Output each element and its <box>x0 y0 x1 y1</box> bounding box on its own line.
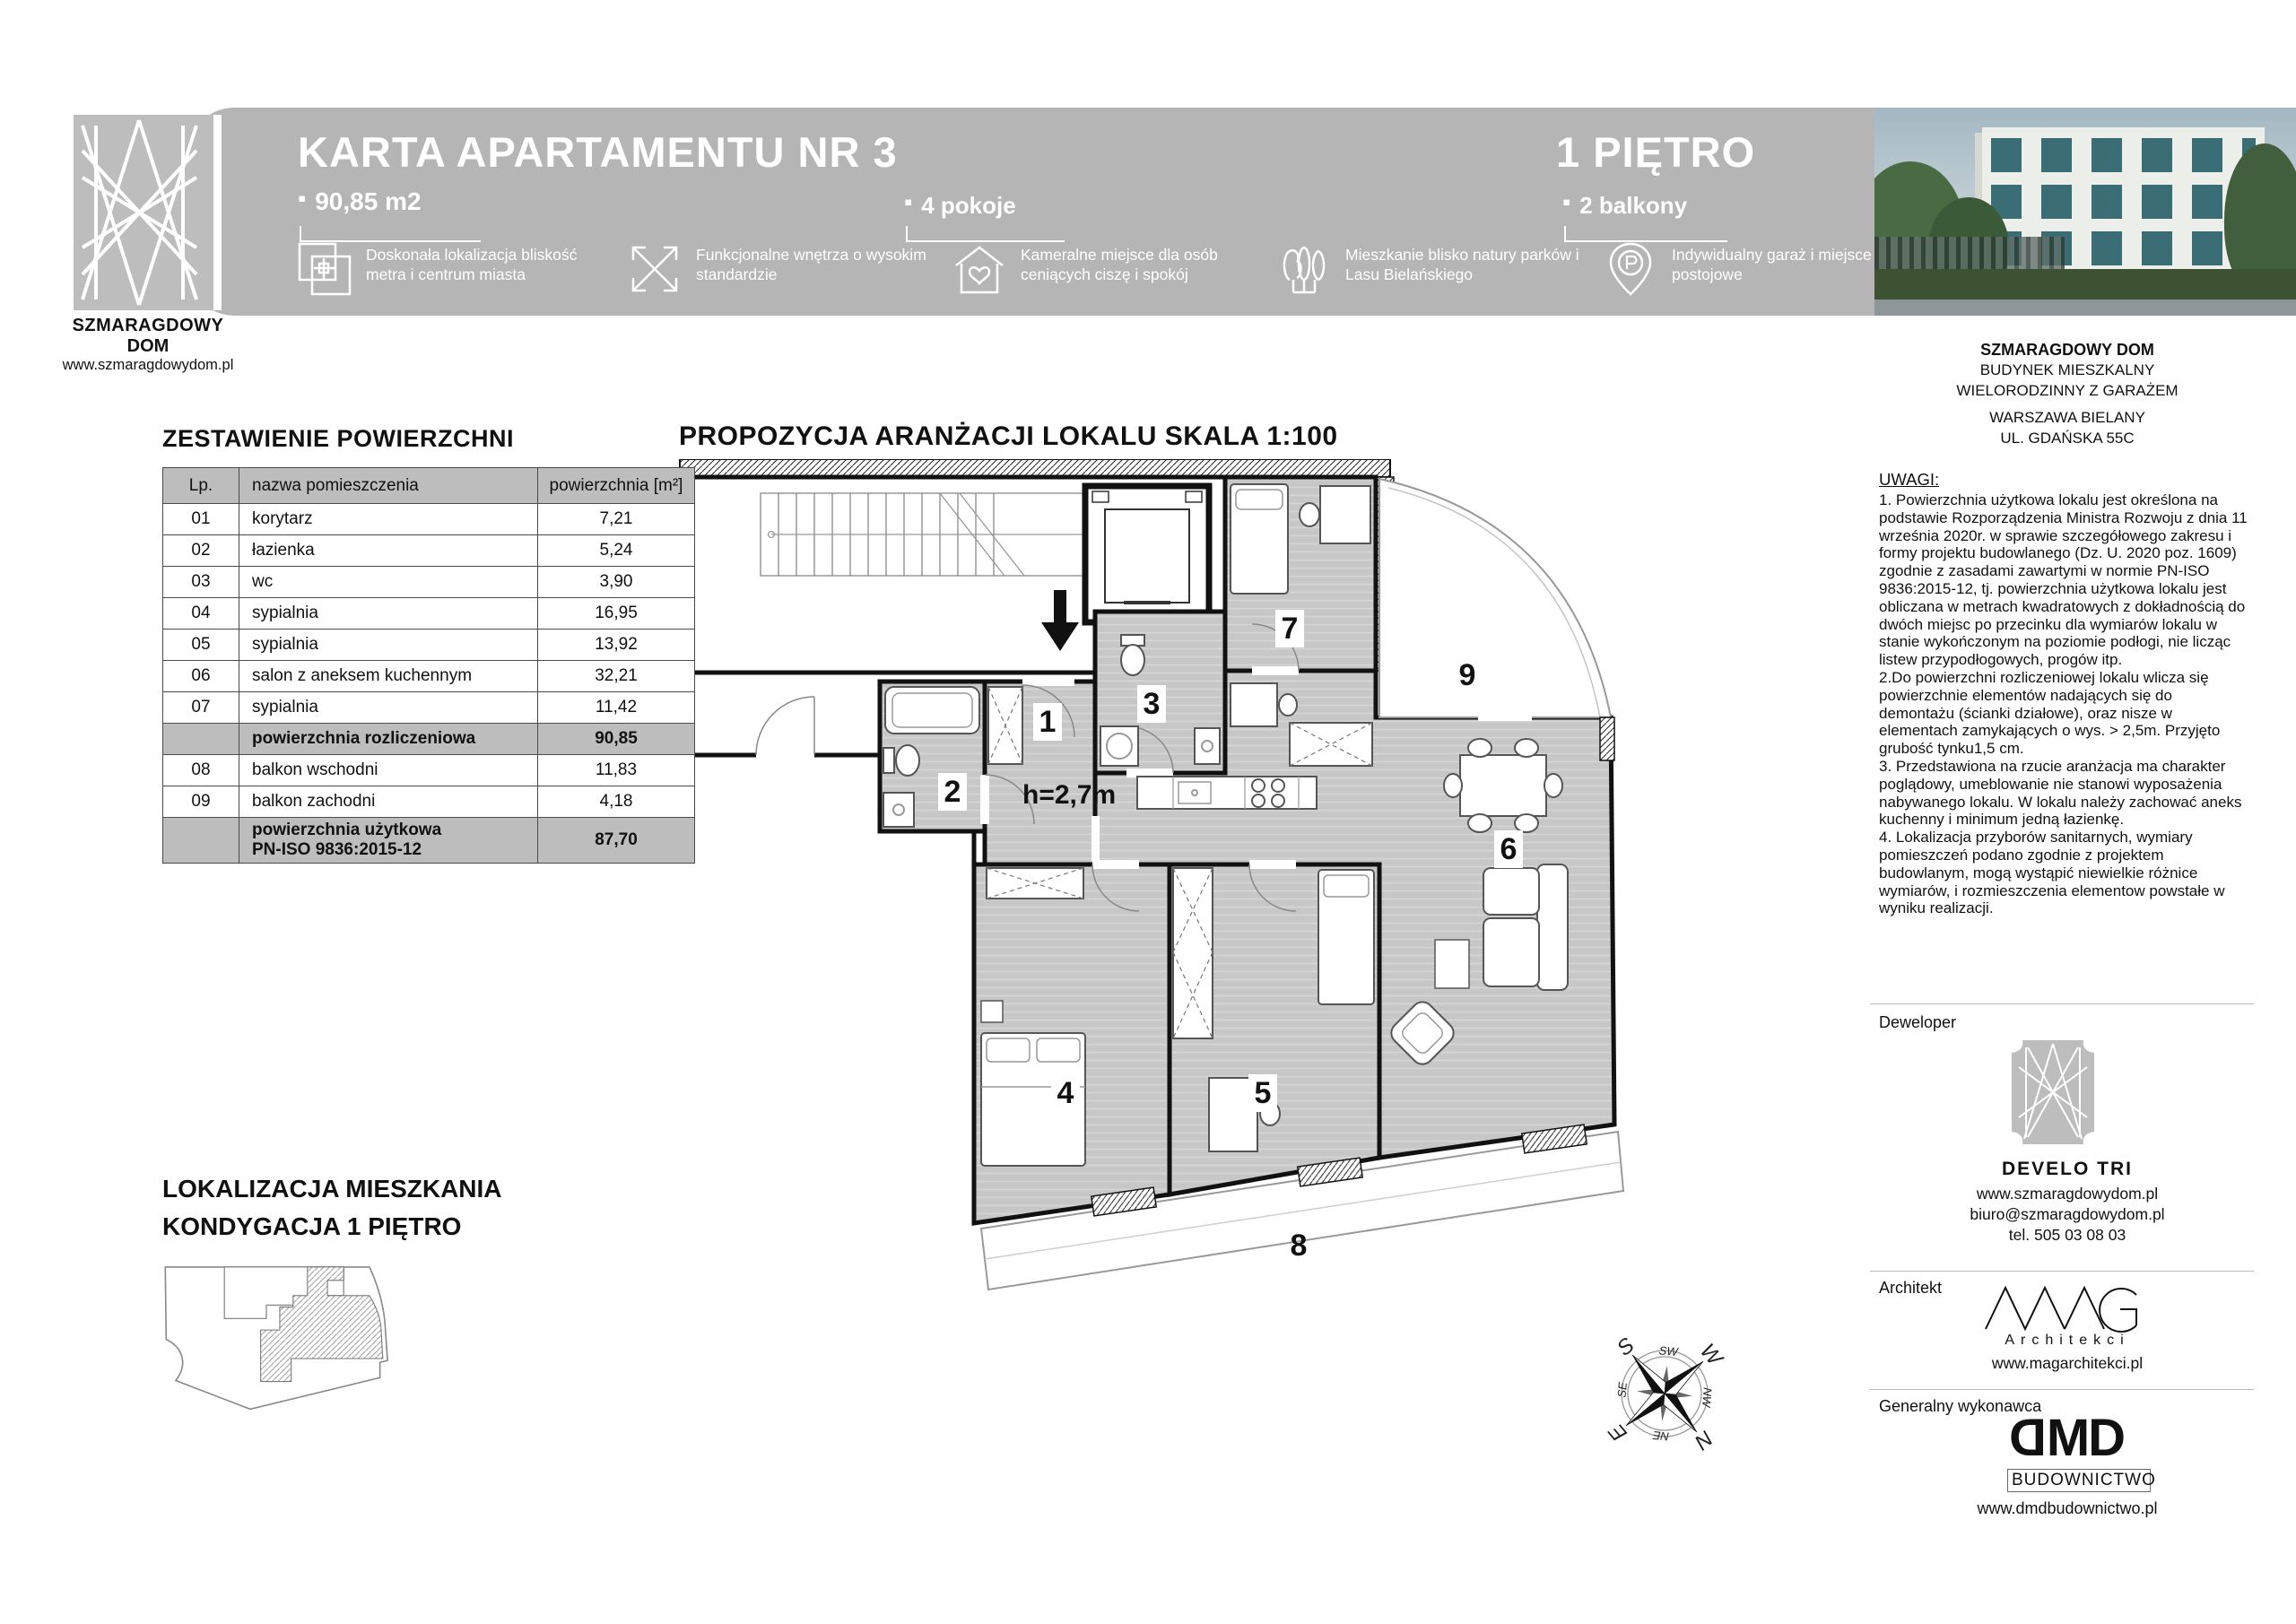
note-paragraph: 1. Powierzchnia użytkowa lokalu jest okr… <box>1879 491 2250 669</box>
compass-w: W <box>1695 1339 1728 1372</box>
address-block: WARSZAWA BIELANY UL. GDAŃSKA 55C <box>1879 408 2256 449</box>
vestibule-walls <box>680 673 880 755</box>
feature-text: Mieszkanie blisko natury parków i Lasu B… <box>1345 240 1585 285</box>
note-paragraph: 3. Przedstawiona na rzucie aranżacja ma … <box>1879 758 2250 829</box>
table-cell: 32,21 <box>538 661 695 692</box>
page-title: KARTA APARTAMENTU NR 3 <box>298 127 898 177</box>
develo-tri-logo <box>2012 1040 2094 1144</box>
compass-se: SE <box>1614 1381 1629 1398</box>
room-label: 8 <box>1291 1229 1308 1263</box>
developer-name: DEVELO TRI <box>1879 1159 2256 1180</box>
floor-plan: 1 2 3 4 5 6 7 8 9 h=2,7m N E S W <box>671 459 1810 1499</box>
room-label: 4 <box>1057 1076 1074 1110</box>
feature-text: Funkcjonalne wnętrza o wysokim standardz… <box>696 240 935 285</box>
table-cell: 16,95 <box>538 598 695 630</box>
room-label: 6 <box>1500 832 1518 866</box>
bullet-icon: ▪ <box>298 185 306 212</box>
logo-star-icon <box>74 115 205 310</box>
table-cell: sypialnia <box>239 692 538 724</box>
apartment-card-page: SZMARAGDOWY DOM www.szmaragdowydom.pl KA… <box>0 0 2296 1624</box>
divider <box>1870 1271 2254 1272</box>
table-cell <box>163 818 239 864</box>
architect-www: www.magarchitekci.pl <box>1879 1354 2256 1373</box>
table-row: 02łazienka5,24 <box>163 535 695 567</box>
table-cell: 05 <box>163 630 239 661</box>
table-cell: wc <box>239 567 538 598</box>
room-label: 2 <box>944 775 961 809</box>
table-cell: 03 <box>163 567 239 598</box>
location-heading-2: KONDYGACJA 1 PIĘTRO <box>162 1212 461 1241</box>
table-cell <box>163 724 239 755</box>
table-cell: 04 <box>163 598 239 630</box>
dmd-logo: DMD <box>1879 1413 2256 1463</box>
ceiling-height-label: h=2,7m <box>1022 780 1116 810</box>
developer-label: Deweloper <box>1879 1013 2256 1032</box>
brand-text: SZMARAGDOWY DOM www.szmaragdowydom.pl <box>36 316 260 374</box>
elevator-icon <box>1085 486 1209 622</box>
table-cell: 01 <box>163 504 239 535</box>
location-diagram <box>148 1254 444 1478</box>
areas-table: Lp. nazwa pomieszczenia powierzchnia [m²… <box>162 467 695 864</box>
feature-interiors: Funkcjonalne wnętrza o wysokim standardz… <box>626 240 935 298</box>
table-row: 01korytarz7,21 <box>163 504 695 535</box>
house-heart-icon <box>951 240 1008 298</box>
table-row: 06salon z aneksem kuchennym32,21 <box>163 661 695 692</box>
table-cell: balkon wschodni <box>239 755 538 786</box>
table-row: 07sypialnia11,42 <box>163 692 695 724</box>
contractor-sub: BUDOWNICTWO <box>2007 1469 2151 1492</box>
bullet-icon: ▪ <box>1562 188 1570 215</box>
table-cell: łazienka <box>239 535 538 567</box>
table-cell: 07 <box>163 692 239 724</box>
compass-nw: NW <box>1700 1387 1715 1410</box>
project-line: SZMARAGDOWY DOM <box>1879 339 2256 360</box>
table-row: 08balkon wschodni11,83 <box>163 755 695 786</box>
feature-quiet: Kameralne miejsce dla osób ceniących cis… <box>951 240 1260 298</box>
photo-road <box>1874 300 2296 316</box>
brand-line1: SZMARAGDOWY <box>36 316 260 336</box>
area-subtitle: ▪90,85 m2 <box>298 185 422 216</box>
table-cell: powierzchnia użytkowaPN-ISO 9836:2015-12 <box>239 818 538 864</box>
table-row: 05sypialnia13,92 <box>163 630 695 661</box>
table-cell: 13,92 <box>538 630 695 661</box>
address-line: UL. GDAŃSKA 55C <box>1879 429 2256 449</box>
feature-garage: Indywidualny garaż i miejsce postojowe <box>1602 240 1911 298</box>
location-squares-icon <box>296 240 353 298</box>
feature-text: Kameralne miejsce dla osób ceniących cis… <box>1021 240 1260 285</box>
plan-north-wall <box>680 459 1390 477</box>
architect-sub: Architekci <box>1879 1333 2256 1349</box>
plan-heading: PROPOZYCJA ARANŻACJI LOKALU SKALA 1:100 <box>679 421 1338 452</box>
table-row: 09balkon zachodni4,18 <box>163 786 695 818</box>
developer-www: www.szmaragdowydom.pl <box>1879 1184 2256 1204</box>
table-row: 04sypialnia16,95 <box>163 598 695 630</box>
developer-email: biuro@szmaragdowydom.pl <box>1879 1204 2256 1225</box>
compass-ne: NE <box>1652 1429 1670 1444</box>
table-cell: powierzchnia rozliczeniowa <box>239 724 538 755</box>
parking-pin-icon <box>1602 240 1659 298</box>
trees-icon <box>1275 240 1333 298</box>
contractor-www: www.dmdbudownictwo.pl <box>1879 1499 2256 1518</box>
compass-n: N <box>1690 1426 1718 1455</box>
table-cell: 08 <box>163 755 239 786</box>
areas-heading: ZESTAWIENIE POWIERZCHNI <box>162 425 514 453</box>
building-photo <box>1874 108 2296 316</box>
divider <box>1870 1389 2254 1390</box>
table-cell: 11,42 <box>538 692 695 724</box>
room-label: 7 <box>1282 612 1299 646</box>
room-label: 1 <box>1039 705 1057 739</box>
feature-location: Doskonała lokalizacja bliskość metra i c… <box>296 240 605 298</box>
col-area: powierzchnia [m²] <box>538 468 695 504</box>
developer-tel: tel. 505 03 08 03 <box>1879 1225 2256 1246</box>
project-line: WIELORODZINNY Z GARAŻEM <box>1879 381 2256 402</box>
table-header-row: Lp. nazwa pomieszczenia powierzchnia [m²… <box>163 468 695 504</box>
szmaragdowy-dom-logo <box>74 115 222 310</box>
project-block: SZMARAGDOWY DOM BUDYNEK MIESZKALNY WIELO… <box>1879 339 2256 402</box>
table-cell: 06 <box>163 661 239 692</box>
feature-text: Doskonała lokalizacja bliskość metra i c… <box>366 240 605 285</box>
room-label: 3 <box>1144 687 1161 721</box>
floor-title: 1 PIĘTRO <box>1556 127 1755 177</box>
table-cell: 3,90 <box>538 567 695 598</box>
table-cell: korytarz <box>239 504 538 535</box>
table-cell: 90,85 <box>538 724 695 755</box>
address-line: WARSZAWA BIELANY <box>1879 408 2256 429</box>
room-label: 9 <box>1459 658 1476 692</box>
photo-hedge <box>1874 269 2296 300</box>
balcony-east <box>1379 479 1611 717</box>
bullet-icon: ▪ <box>904 188 912 215</box>
table-cell: 4,18 <box>538 786 695 818</box>
table-row: 03wc3,90 <box>163 567 695 598</box>
table-row: powierzchnia użytkowaPN-ISO 9836:2015-12… <box>163 818 695 864</box>
col-lp: Lp. <box>163 468 239 504</box>
col-name: nazwa pomieszczenia <box>239 468 538 504</box>
location-heading-1: LOKALIZACJA MIESZKANIA <box>162 1175 502 1203</box>
table-cell: balkon zachodni <box>239 786 538 818</box>
divider <box>1870 1003 2254 1004</box>
sw-step-wall <box>880 831 974 864</box>
mag-logo-icon <box>1982 1281 2152 1333</box>
expand-arrows-icon <box>626 240 683 298</box>
table-cell: 87,70 <box>538 818 695 864</box>
table-cell: 11,83 <box>538 755 695 786</box>
feature-nature: Mieszkanie blisko natury parków i Lasu B… <box>1275 240 1585 298</box>
room-label: 5 <box>1255 1076 1272 1110</box>
table-cell: 09 <box>163 786 239 818</box>
table-cell: salon z aneksem kuchennym <box>239 661 538 692</box>
table-row: powierzchnia rozliczeniowa90,85 <box>163 724 695 755</box>
note-paragraph: 2.Do powierzchni rozliczeniowej lokalu w… <box>1879 669 2250 758</box>
table-cell: sypialnia <box>239 630 538 661</box>
brand-url: www.szmaragdowydom.pl <box>36 357 260 374</box>
table-cell: 7,21 <box>538 504 695 535</box>
table-cell: sypialnia <box>239 598 538 630</box>
notes-heading: UWAGI: <box>1879 470 2256 490</box>
brand-line2: DOM <box>36 336 260 357</box>
project-line: BUDYNEK MIESZKALNY <box>1879 360 2256 381</box>
notes-list: 1. Powierzchnia użytkowa lokalu jest okr… <box>1879 491 2250 917</box>
compass-icon: N E S W NE NW SE SW <box>1594 1323 1735 1464</box>
balconies-subtitle: ▪2 balkony <box>1562 188 1687 220</box>
rooms-subtitle: ▪4 pokoje <box>904 188 1016 220</box>
table-cell: 02 <box>163 535 239 567</box>
note-paragraph: 4. Lokalizacja przyborów sanitarnych, wy… <box>1879 829 2250 917</box>
compass-sw: SW <box>1658 1343 1680 1359</box>
compass-e: E <box>1604 1419 1632 1446</box>
table-cell: 5,24 <box>538 535 695 567</box>
